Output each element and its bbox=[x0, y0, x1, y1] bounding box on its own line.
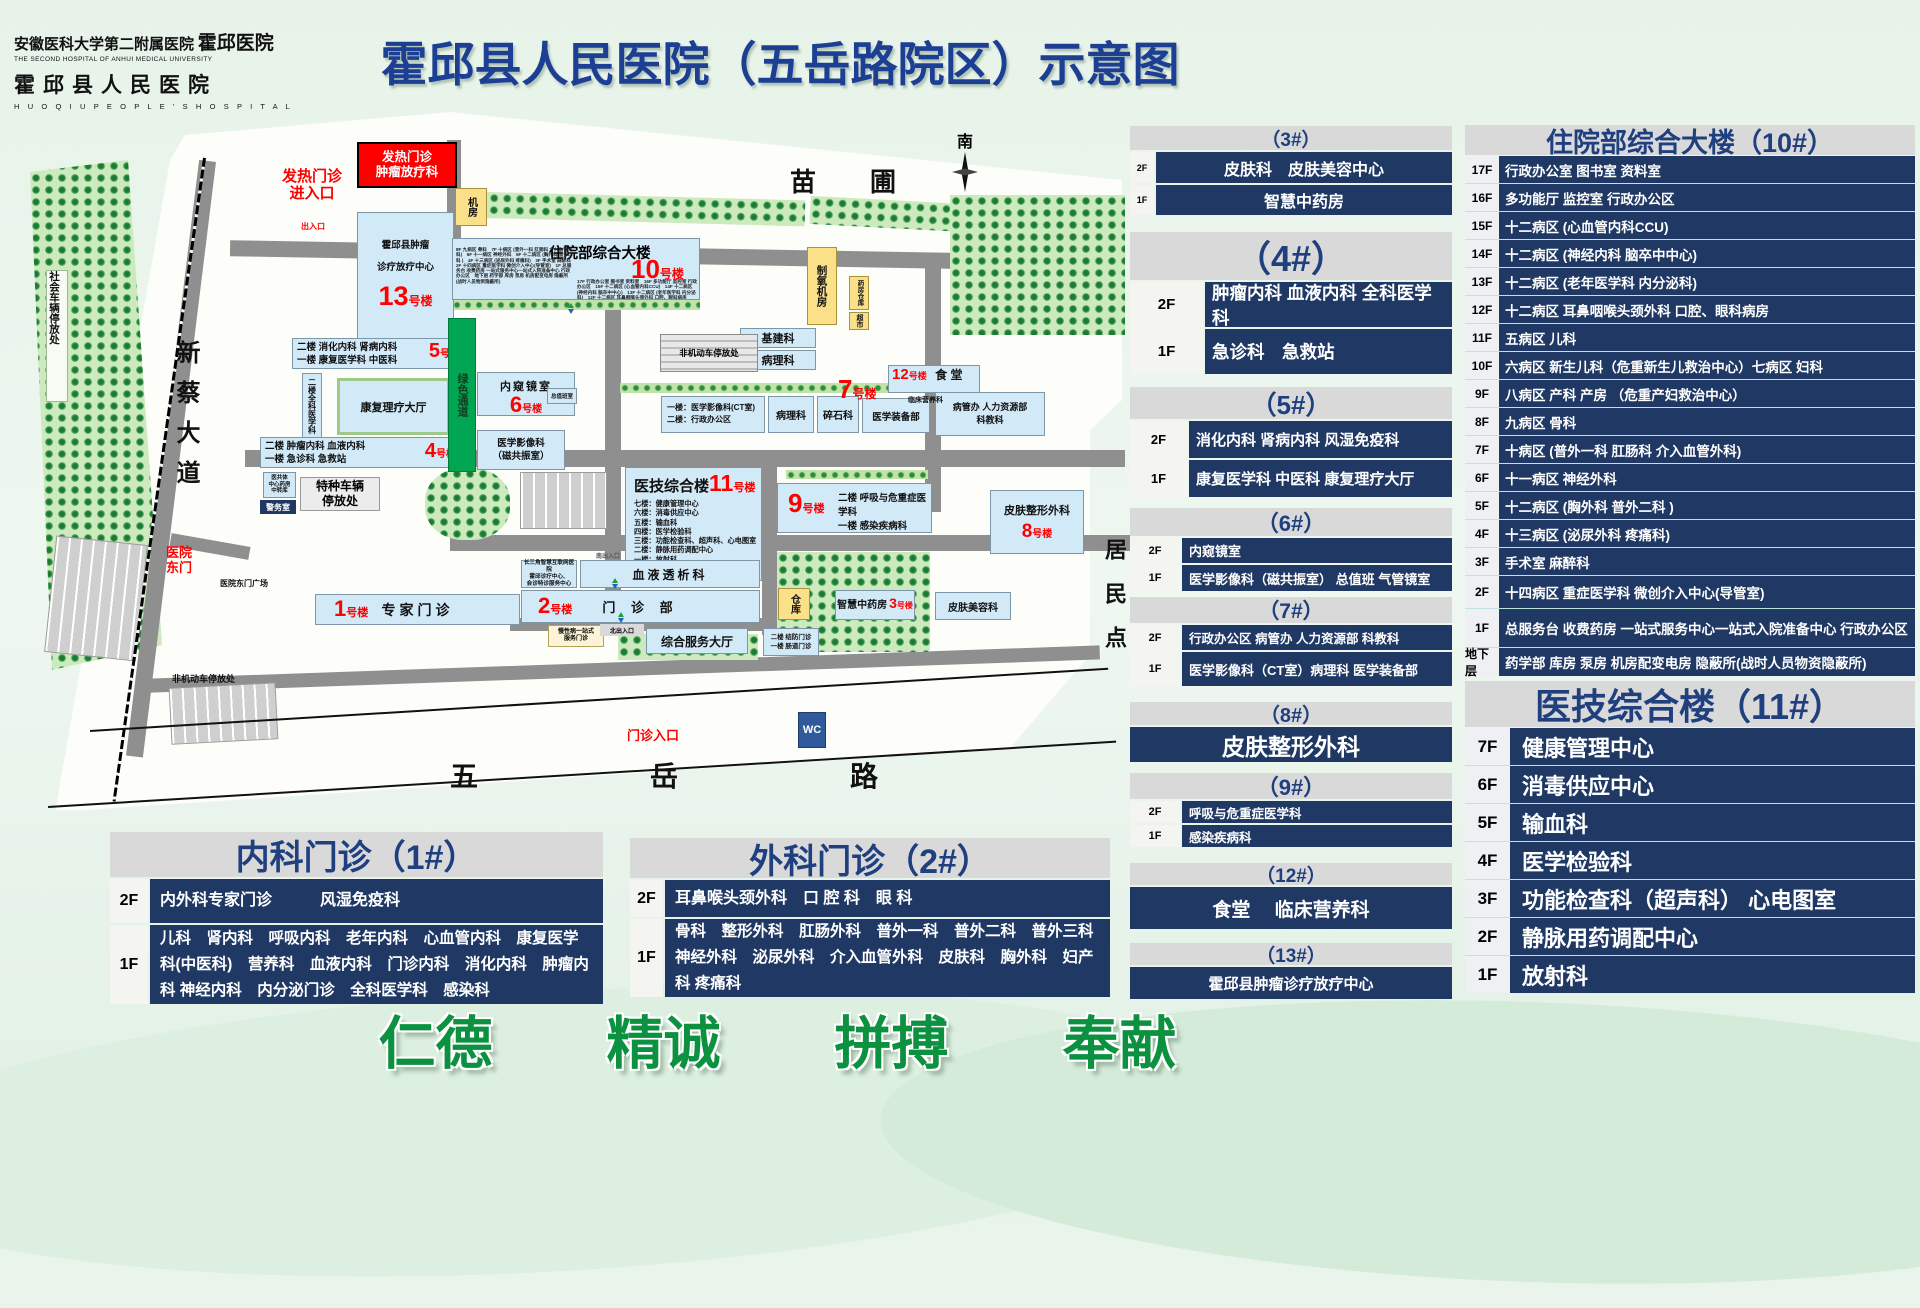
building-3-pharmacy: 智慧中药房3号楼 bbox=[835, 590, 915, 620]
tree-grove-northeast bbox=[950, 195, 1125, 335]
floor-label: 2F bbox=[1130, 538, 1180, 563]
floor-departments: 智慧中药房 bbox=[1156, 185, 1452, 215]
road bbox=[762, 450, 777, 635]
exit-label: 出入口 bbox=[301, 221, 325, 232]
supermarket: 超市 bbox=[849, 312, 869, 330]
panel-6-title: （6#） bbox=[1130, 508, 1452, 536]
floor-departments: 内窥镜室 bbox=[1182, 538, 1452, 563]
floor-departments: 健康管理中心 bbox=[1510, 728, 1915, 765]
building-13: 霍邱县肿瘤 诊疗放疗中心 13号楼 bbox=[357, 212, 454, 344]
internal-clinic-directory: 内科门诊（1#） 2F内外科专家门诊 风湿免疫科 1F儿科 肾内科 呼吸内科 老… bbox=[110, 832, 603, 1004]
skin-beauty-dept: 皮肤美容科 bbox=[935, 592, 1011, 620]
floor-row: 2F 静脉用药调配中心 bbox=[1465, 918, 1915, 955]
floor-departments: 药学部 库房 泵房 机房配变电房 隐蔽所(战时人员物资隐蔽所) bbox=[1499, 648, 1915, 676]
mri-room: 医学影像科（磁共振室） bbox=[477, 430, 565, 470]
floor-departments: 总服务台 收费药房 一站式服务中心一站式入院准备中心 行政办公区 bbox=[1499, 609, 1915, 647]
fever-clinic-box: 发热门诊肿瘤放疗科 bbox=[357, 142, 457, 188]
hedge bbox=[620, 383, 930, 393]
internet-hospital-center: 长三角智慧互联网医院霍邱诊疗中心、会诊特诊服务中心 bbox=[521, 560, 577, 588]
service-hall: 综合服务大厅 bbox=[646, 628, 748, 654]
campus-map: 社会车辆停放处 发热门诊肿瘤放疗科 发热门诊进入口 出入口 霍邱县肿瘤 诊疗放疗… bbox=[20, 100, 1125, 810]
floor-departments: 行政办公室 图书室 资料室 bbox=[1499, 156, 1915, 183]
floor-label: 13F bbox=[1465, 268, 1499, 295]
panel-5: （5#） 2F消化内科 肾病内科 风湿免疫科 1F康复医学科 中医科 康复理疗大… bbox=[1130, 387, 1452, 497]
floor-label: 1F bbox=[630, 919, 663, 997]
hedge bbox=[452, 300, 700, 310]
floor-label: 1F bbox=[1130, 329, 1203, 374]
floor-label: 3F bbox=[1465, 548, 1499, 575]
panel-13: （13#） 霍邱县肿瘤诊疗放疗中心 bbox=[1130, 943, 1452, 999]
b10-mini-left: 8F 九病区 骨科 7F 十病区 (普外一科 肛肠科 介入血管外科) 6F 十一… bbox=[456, 247, 574, 297]
panel-8-title: （8#） bbox=[1130, 702, 1452, 725]
building-1-experts: 1号楼 专家门诊 bbox=[315, 594, 520, 625]
panel-4-title: （4#） bbox=[1130, 232, 1452, 280]
floor-row: 6F 消毒供应中心 bbox=[1465, 766, 1915, 803]
hospital-logo: 安徽医科大学第二附属医院 霍邱医院 THE SECOND HOSPITAL OF… bbox=[14, 28, 274, 111]
panel-6: （6#） 2F内窥镜室 1F医学影像科（磁共振室） 总值班 气管镜室 bbox=[1130, 508, 1452, 591]
logo-line-en1: THE SECOND HOSPITAL OF ANHUI MEDICAL UNI… bbox=[14, 56, 274, 63]
medtech-building-directory: 医技综合楼（11#） 7F 健康管理中心 6F 消毒供应中心 5F 输血科 4F… bbox=[1465, 681, 1915, 993]
internal-clinic-title: 内科门诊（1#） bbox=[110, 832, 603, 877]
floor-label: 7F bbox=[1465, 436, 1499, 463]
floor-row: 1F 总服务台 收费药房 一站式服务中心一站式入院准备中心 行政办公区 bbox=[1465, 609, 1915, 647]
logo-line-cn2: 霍邱县人民医院 bbox=[14, 69, 274, 99]
floor-row: 13F 十二病区 (老年医学科 内分泌科) bbox=[1465, 268, 1915, 295]
floor-label: 2F bbox=[1130, 152, 1154, 183]
floor-row: 7F 十病区 (普外一科 肛肠科 介入血管外科) bbox=[1465, 436, 1915, 463]
floor-departments: 康复医学科 中医科 康复理疗大厅 bbox=[1189, 460, 1452, 497]
building-4: 二楼 肿瘤内科 血液内科4号楼 一楼 急诊科 急救站 bbox=[260, 437, 465, 468]
floor-row: 4F 医学检验科 bbox=[1465, 842, 1915, 879]
entrance-arrow-icon bbox=[568, 303, 575, 314]
panel-12: （12#） 食堂 临床营养科 bbox=[1130, 863, 1452, 929]
logo-line-en2: H U O Q I U P E O P L E ' S H O S P I T … bbox=[14, 102, 274, 111]
floor-departments: 呼吸与危重症医学科 bbox=[1182, 801, 1452, 823]
floor-departments: 急诊科 急救站 bbox=[1205, 329, 1452, 374]
inpatient-tower-title: 住院部综合大楼（10#） bbox=[1465, 125, 1915, 155]
floor-departments: 五病区 儿科 bbox=[1499, 324, 1915, 351]
floor-label: 8F bbox=[1465, 408, 1499, 435]
floor-departments: 十四病区 重症医学科 微创介入中心(导管室) bbox=[1499, 576, 1915, 608]
b10-mini-right: 17F 行政办公室 图书室 资料室 16F 多功能厅 监控室 行政办公区 15F… bbox=[577, 279, 697, 299]
floor-label: 9F bbox=[1465, 380, 1499, 407]
floor-label: 2F bbox=[1130, 282, 1203, 327]
floor-departments: 儿科 肾内科 呼吸内科 老年内科 心血管内科 康复医学科(中医科) 营养科 血液… bbox=[150, 925, 603, 1004]
parking-stripes bbox=[44, 536, 148, 662]
floor-label: 5F bbox=[1465, 492, 1499, 519]
rehab-therapy-hall: 康复理疗大厅 bbox=[337, 378, 450, 435]
floor-departments: 内外科专家门诊 风湿免疫科 bbox=[150, 879, 603, 923]
floor-label: 1F bbox=[1465, 609, 1499, 647]
floor-departments: 十二病区 (老年医学科 内分泌科) bbox=[1499, 268, 1915, 295]
north-exit-label: 北出入口 bbox=[600, 624, 644, 636]
entrance-arrow-icon bbox=[612, 578, 619, 589]
panel-12-title: （12#） bbox=[1130, 863, 1452, 885]
floor-row: 10F 六病区 新生儿科（危重新生儿救治中心）七病区 妇科 bbox=[1465, 352, 1915, 379]
panel-12-departments: 食堂 临床营养科 bbox=[1130, 887, 1452, 929]
page-title: 霍邱县人民医院（五岳路院区）示意图 bbox=[300, 26, 1260, 95]
floor-departments: 十三病区 (泌尿外科 疼痛科) bbox=[1499, 520, 1915, 547]
floor-row: 1F 放射科 bbox=[1465, 956, 1915, 993]
floor-row: 9F 八病区 产科 产房 （危重产妇救治中心） bbox=[1465, 380, 1915, 407]
floor-row: 3F 手术室 麻醉科 bbox=[1465, 548, 1915, 575]
parking-stripes bbox=[169, 682, 279, 745]
nursery-label: 苗 圃 bbox=[790, 162, 910, 199]
chronic-disease-clinic: 慢性病一站式服务门诊 bbox=[548, 625, 604, 647]
floor-row: 5F 十二病区 (胸外科 普外二科 ) bbox=[1465, 492, 1915, 519]
panel-4: （4#） 2F肿瘤内科 血液内科 全科医学科 1F急诊科 急救站 bbox=[1130, 232, 1452, 374]
east-gate-label: 医院东门 bbox=[166, 545, 192, 575]
panel-5-title: （5#） bbox=[1130, 387, 1452, 419]
medtech-building-title: 医技综合楼（11#） bbox=[1465, 681, 1915, 727]
logo-line-cn1: 安徽医科大学第二附属医院 霍邱医院 bbox=[14, 28, 274, 55]
outpatient-entry-label: 门诊入口 bbox=[627, 725, 679, 744]
floor-row: 5F 输血科 bbox=[1465, 804, 1915, 841]
floor-departments: 医学影像科（磁共振室） 总值班 气管镜室 bbox=[1182, 565, 1452, 591]
tree-grove-center bbox=[425, 468, 510, 540]
floor-departments: 放射科 bbox=[1510, 956, 1915, 993]
tb-intestinal-clinic: 二楼 结防门诊一楼 肠道门诊 bbox=[763, 628, 819, 656]
floor-row: 15F 十二病区 (心血管内科CCU) bbox=[1465, 212, 1915, 239]
panel-9: （9#） 2F呼吸与危重症医学科 1F感染疾病科 bbox=[1130, 773, 1452, 847]
compass: 南 bbox=[952, 128, 978, 197]
floor-label: 3F bbox=[1465, 880, 1510, 917]
floor-departments: 消毒供应中心 bbox=[1510, 766, 1915, 803]
residents-label: 居民点 bbox=[1098, 538, 1130, 670]
floor-row: 2F 十四病区 重症医学科 微创介入中心(导管室) bbox=[1465, 576, 1915, 608]
warehouse: 仓库 bbox=[778, 588, 810, 620]
hemodialysis-dept: 血液透析科 bbox=[580, 560, 760, 588]
floor-label: 1F bbox=[1130, 185, 1154, 215]
panel-3: （3#） 2F皮肤科 皮肤美容中心 1F智慧中药房 bbox=[1130, 126, 1452, 215]
floor-label: 16F bbox=[1465, 184, 1499, 211]
floor-departments: 行政办公区 病管办 人力资源部 科教科 bbox=[1182, 625, 1452, 650]
floor-label: 17F bbox=[1465, 156, 1499, 183]
police-office: 警务室 bbox=[260, 500, 296, 514]
floor-label: 15F bbox=[1465, 212, 1499, 239]
floor-departments: 静脉用药调配中心 bbox=[1510, 918, 1915, 955]
social-parking-label: 社会车辆停放处 bbox=[46, 270, 68, 402]
floor-label: 11F bbox=[1465, 324, 1499, 351]
building-7-imaging: 一楼：医学影像科(CT室)二楼：行政办公区 bbox=[661, 396, 765, 433]
floor-departments: 骨科 整形外科 肛肠外科 普外一科 普外二科 普外三科 神经外科 泌尿外科 介入… bbox=[665, 919, 1110, 997]
machine-room: 机房 bbox=[455, 188, 487, 226]
parking-stripes bbox=[520, 472, 607, 529]
nonmotor-parking-center: 非机动车停放处 bbox=[660, 334, 758, 372]
floor-row: 17F 行政办公室 图书室 资料室 bbox=[1465, 156, 1915, 183]
special-vehicle-parking: 特种车辆停放处 bbox=[300, 477, 380, 511]
floor-departments: 六病区 新生儿科（危重新生儿救治中心）七病区 妇科 bbox=[1499, 352, 1915, 379]
floor-label: 1F bbox=[1130, 825, 1180, 847]
compass-south-label: 南 bbox=[952, 128, 978, 152]
pharmacy-warehouse: 药房仓库 bbox=[849, 276, 869, 310]
floor-label: 4F bbox=[1465, 842, 1510, 879]
south-exit-label: 南出入口 bbox=[596, 551, 620, 560]
floor-label: 2F bbox=[110, 879, 148, 923]
floor-departments: 十病区 (普外一科 肛肠科 介入血管外科) bbox=[1499, 436, 1915, 463]
floor-departments: 十二病区 耳鼻咽喉头颈外科 口腔、眼科病房 bbox=[1499, 296, 1915, 323]
fever-entry-label: 发热门诊进入口 bbox=[282, 168, 342, 202]
floor-row: 11F 五病区 儿科 bbox=[1465, 324, 1915, 351]
green-channel: 绿色通道 bbox=[448, 318, 476, 472]
floor-departments: 医学影像科（CT室）病理科 医学装备部 bbox=[1182, 652, 1452, 686]
floor-row: 12F 十二病区 耳鼻咽喉头颈外科 口腔、眼科病房 bbox=[1465, 296, 1915, 323]
floor-departments: 手术室 麻醉科 bbox=[1499, 548, 1915, 575]
floor-departments: 输血科 bbox=[1510, 804, 1915, 841]
building-12-canteen: 12号楼 食 堂 bbox=[888, 365, 980, 393]
floor-departments: 耳鼻喉头颈外科 口 腔 科 眼 科 bbox=[665, 880, 1110, 917]
pathology-dept: 病理科 bbox=[768, 396, 814, 433]
general-medicine-wing: 二楼全科医学科 bbox=[302, 373, 322, 439]
floor-label: 1F bbox=[1465, 956, 1510, 993]
floor-departments: 肿瘤内科 血液内科 全科医学科 bbox=[1205, 282, 1452, 327]
floor-label: 2F bbox=[1130, 625, 1180, 650]
floor-departments: 多功能厅 监控室 行政办公区 bbox=[1499, 184, 1915, 211]
floor-row: 3F 功能检查科（超声科） 心电图室 bbox=[1465, 880, 1915, 917]
floor-label: 2F bbox=[1465, 576, 1499, 608]
surgical-clinic-directory: 外科门诊（2#） 2F耳鼻喉头颈外科 口 腔 科 眼 科 1F骨科 整形外科 肛… bbox=[630, 838, 1110, 997]
floor-departments: 八病区 产科 产房 （危重产妇救治中心） bbox=[1499, 380, 1915, 407]
building-7-number: 7号楼 bbox=[838, 376, 876, 403]
floor-label: 2F bbox=[1130, 801, 1180, 823]
floor-label: 地下层 bbox=[1465, 648, 1499, 676]
floor-label: 10F bbox=[1465, 352, 1499, 379]
nutrition-dept-label: 临床营养科 bbox=[908, 395, 943, 405]
floor-label: 4F bbox=[1465, 520, 1499, 547]
building-10: 住院部综合大楼 10号楼 8F 九病区 骨科 7F 十病区 (普外一科 肛肠科 … bbox=[452, 238, 700, 300]
building-2-outpatient: 2号楼 门 诊 部 bbox=[521, 590, 760, 623]
floor-row: 6F 十一病区 神经外科 bbox=[1465, 464, 1915, 491]
floor-label: 6F bbox=[1465, 464, 1499, 491]
floor-label: 7F bbox=[1465, 728, 1510, 765]
oxygen-room: 制氧机房 bbox=[807, 247, 837, 325]
floor-departments: 九病区 骨科 bbox=[1499, 408, 1915, 435]
floor-row: 7F 健康管理中心 bbox=[1465, 728, 1915, 765]
floor-label: 5F bbox=[1465, 804, 1510, 841]
hedge bbox=[786, 470, 928, 479]
building-9: 9号楼 二楼 呼吸与危重症医学科一楼 感染疾病科 bbox=[777, 483, 932, 533]
floor-departments: 十二病区 (神经内科 脑卒中中心) bbox=[1499, 240, 1915, 267]
floor-label: 1F bbox=[110, 925, 148, 1004]
hospital-motto: 仁德 精诚 拼搏 奉献 bbox=[270, 998, 1285, 1080]
floor-departments: 十二病区 (胸外科 普外二科 ) bbox=[1499, 492, 1915, 519]
east-gate-square-label: 医院东门广场 bbox=[220, 578, 268, 589]
panel-13-departments: 霍邱县肿瘤诊疗放疗中心 bbox=[1130, 967, 1452, 999]
floor-label: 12F bbox=[1465, 296, 1499, 323]
compass-star-icon bbox=[952, 152, 978, 192]
floor-row: 16F 多功能厅 监控室 行政办公区 bbox=[1465, 184, 1915, 211]
floor-label: 14F bbox=[1465, 240, 1499, 267]
nonmotor-parking-left-label: 非机动车停放处 bbox=[172, 672, 235, 685]
panel-7-title: （7#） bbox=[1130, 597, 1452, 623]
restroom-icon: WC bbox=[798, 712, 826, 748]
entrance-arrow-icon bbox=[618, 612, 625, 623]
floor-departments: 十一病区 神经外科 bbox=[1499, 464, 1915, 491]
panel-13-title: （13#） bbox=[1130, 943, 1452, 965]
floor-label: 2F bbox=[1130, 421, 1187, 458]
floor-label: 6F bbox=[1465, 766, 1510, 803]
floor-departments: 消化内科 肾病内科 风湿免疫科 bbox=[1189, 421, 1452, 458]
building-5: 二楼 消化内科 肾病内科5号楼 一楼 康复医学科 中医科 bbox=[292, 338, 465, 369]
central-pharmacy-depot: 医共体中心药房中转库 bbox=[263, 472, 296, 498]
wuyue-road-label: 五 岳 路 bbox=[450, 755, 950, 795]
floor-label: 2F bbox=[630, 880, 663, 917]
panel-3-title: （3#） bbox=[1130, 126, 1452, 150]
panel-8-departments: 皮肤整形外科 bbox=[1130, 727, 1452, 762]
floor-departments: 感染疾病科 bbox=[1182, 825, 1452, 847]
building-8: 皮肤整形外科 8号楼 bbox=[990, 490, 1084, 554]
floor-departments: 十二病区 (心血管内科CCU) bbox=[1499, 212, 1915, 239]
floor-label: 1F bbox=[1130, 460, 1187, 497]
panel-8: （8#） 皮肤整形外科 bbox=[1130, 702, 1452, 762]
floor-row: 4F 十三病区 (泌尿外科 疼痛科) bbox=[1465, 520, 1915, 547]
floor-row: 8F 九病区 骨科 bbox=[1465, 408, 1915, 435]
panel-9-title: （9#） bbox=[1130, 773, 1452, 799]
xincai-avenue-label: 新蔡大道 bbox=[168, 340, 203, 500]
duty-office: 总值班室 bbox=[547, 388, 577, 404]
floor-departments: 皮肤科 皮肤美容中心 bbox=[1156, 152, 1452, 183]
floor-row: 14F 十二病区 (神经内科 脑卒中中心) bbox=[1465, 240, 1915, 267]
surgical-clinic-title: 外科门诊（2#） bbox=[630, 838, 1110, 878]
floor-label: 2F bbox=[1465, 918, 1510, 955]
inpatient-tower-directory: 住院部综合大楼（10#） 17F 行政办公室 图书室 资料室 16F 多功能厅 … bbox=[1465, 125, 1915, 676]
floor-row: 地下层 药学部 库房 泵房 机房配变电房 隐蔽所(战时人员物资隐蔽所) bbox=[1465, 648, 1915, 676]
floor-label: 1F bbox=[1130, 652, 1180, 686]
admin-hr-dept: 病管办 人力资源部科教科 bbox=[935, 392, 1045, 436]
floor-departments: 功能检查科（超声科） 心电图室 bbox=[1510, 880, 1915, 917]
floor-label: 1F bbox=[1130, 565, 1180, 591]
panel-7: （7#） 2F行政办公区 病管办 人力资源部 科教科 1F医学影像科（CT室）病… bbox=[1130, 597, 1452, 686]
floor-departments: 医学检验科 bbox=[1510, 842, 1915, 879]
